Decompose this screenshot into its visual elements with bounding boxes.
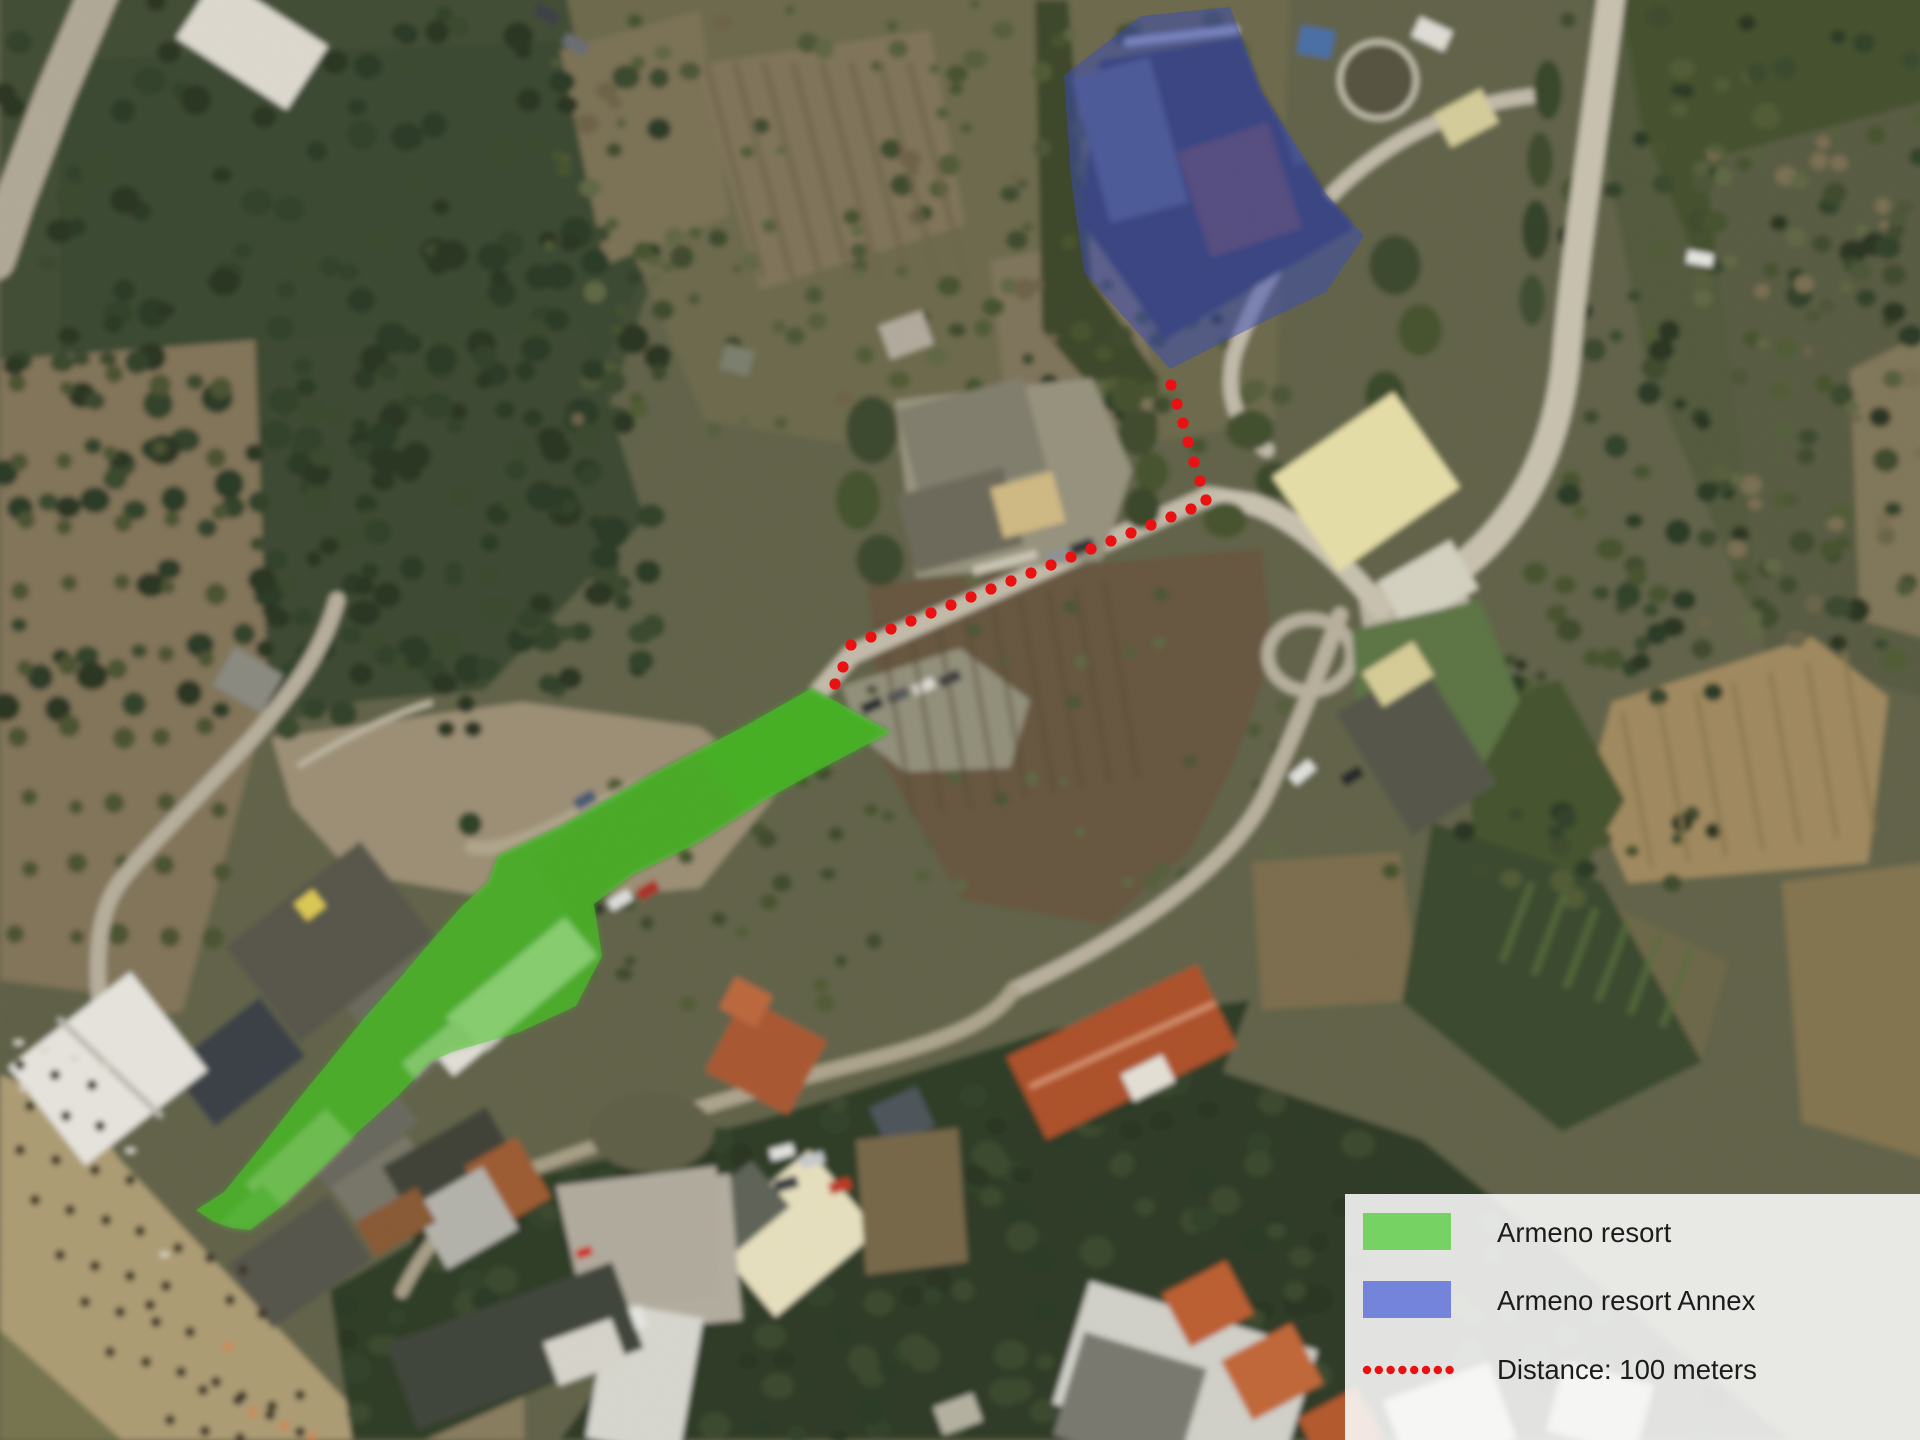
svg-text:Armeno resort: Armeno resort: [1497, 1217, 1672, 1248]
svg-text:Armeno resort Annex: Armeno resort Annex: [1497, 1285, 1756, 1316]
svg-text:Distance: 100 meters: Distance: 100 meters: [1497, 1354, 1757, 1385]
